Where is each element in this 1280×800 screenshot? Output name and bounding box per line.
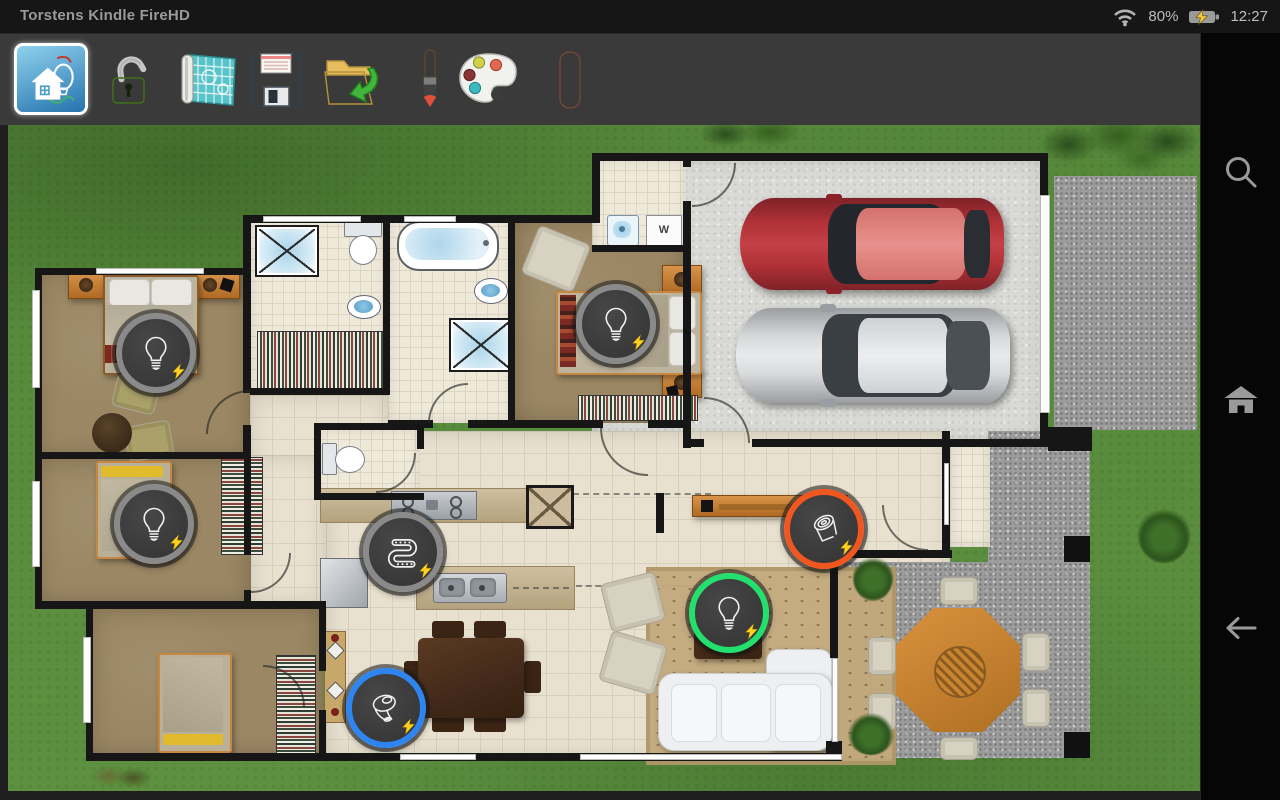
wall <box>35 452 251 459</box>
wall <box>508 215 515 428</box>
patio-chair <box>1022 633 1050 671</box>
master-nightstand-left <box>68 271 104 299</box>
hall-shelf <box>324 631 346 723</box>
nav-search-button[interactable] <box>1221 153 1261 193</box>
living-room-light-marker[interactable] <box>689 573 769 653</box>
nav-home-button[interactable] <box>1221 380 1261 420</box>
driveway <box>1054 176 1197 430</box>
wall <box>468 420 603 428</box>
wifi-icon <box>1112 7 1138 27</box>
wall <box>690 439 704 447</box>
device-name: Torstens Kindle FireHD <box>20 7 190 24</box>
kitchen-pantry <box>526 485 574 529</box>
color-palette-icon <box>456 47 520 113</box>
garage-door <box>1040 195 1050 413</box>
paint-brush-icon <box>398 47 462 113</box>
wall <box>592 245 691 252</box>
master-nightstand-right <box>196 271 240 299</box>
floorplan-button[interactable] <box>176 47 240 113</box>
erase-button[interactable] <box>538 47 602 113</box>
puck-light-icon <box>366 688 406 728</box>
guest-bedroom-light-marker[interactable] <box>576 284 656 364</box>
dining-chair <box>524 661 541 693</box>
window <box>404 216 456 222</box>
nav-back-button[interactable] <box>1221 608 1261 648</box>
wall <box>250 388 390 395</box>
wall <box>1040 413 1048 447</box>
window <box>96 268 204 274</box>
wall <box>1048 427 1092 451</box>
magnifier-icon <box>1221 153 1261 193</box>
plan-bottom-edge <box>8 791 1200 800</box>
fridge <box>320 558 368 608</box>
wall <box>683 201 691 448</box>
master-walkin-robe <box>257 331 387 391</box>
window <box>580 754 842 760</box>
load-button[interactable] <box>318 47 382 113</box>
dining-chair <box>474 621 506 638</box>
red-car <box>740 198 1004 290</box>
grass-tuft <box>853 555 893 601</box>
master-bedroom-light-marker[interactable] <box>116 313 196 393</box>
eraser-icon <box>538 47 602 113</box>
wall <box>319 601 326 671</box>
status-bar: Torstens Kindle FireHD 80% 12:27 <box>0 0 1280 33</box>
wall <box>592 153 1048 161</box>
washing-machine: W <box>646 215 682 246</box>
lightning-bolt-icon <box>402 718 415 735</box>
window <box>832 658 838 742</box>
wall <box>592 153 600 219</box>
wall <box>314 423 424 430</box>
wall <box>656 493 664 533</box>
bulb-light-icon <box>134 504 174 544</box>
wall <box>830 558 838 658</box>
console-spot-light-marker[interactable] <box>784 489 864 569</box>
app-home-button[interactable] <box>14 43 88 115</box>
wall <box>314 493 424 500</box>
tree-canopy <box>1036 125 1200 175</box>
arrow-left-icon <box>1221 608 1261 648</box>
app-toolbar <box>0 33 1200 126</box>
alfresco-paving <box>950 443 990 547</box>
bathroom-sink <box>474 278 508 304</box>
palette-button[interactable] <box>456 47 520 113</box>
spot-light-icon <box>804 509 844 549</box>
battery-charging-icon <box>1188 9 1220 25</box>
unlock-button[interactable] <box>100 47 164 113</box>
bathroom-shower <box>449 318 513 372</box>
window <box>400 754 476 760</box>
patio-chair <box>868 637 896 675</box>
master-round-table <box>92 413 132 453</box>
bedroom2-light-marker[interactable] <box>114 484 194 564</box>
guest-nightstand-top <box>662 265 702 294</box>
wall <box>314 423 321 500</box>
bedroom2-wardrobe <box>221 457 263 555</box>
patio-pillar <box>1064 732 1090 758</box>
patio-pillar <box>1064 536 1090 562</box>
ensuite-shower <box>255 225 319 277</box>
strip-light-icon <box>383 532 423 572</box>
bulb-light-icon <box>596 304 636 344</box>
clock: 12:27 <box>1230 8 1268 25</box>
kitchen-boundary-dash <box>573 493 711 495</box>
window <box>32 481 40 567</box>
wall <box>243 215 251 393</box>
sofa <box>658 673 832 751</box>
bush <box>83 759 155 793</box>
grass-tuft <box>1138 507 1190 563</box>
wall <box>752 439 1048 447</box>
grass-tuft <box>848 713 894 755</box>
lightning-bolt-icon <box>632 334 645 351</box>
window <box>83 637 91 723</box>
wall <box>417 423 424 449</box>
paint-button[interactable] <box>398 47 462 113</box>
system-nav-bar <box>1200 33 1280 800</box>
wc-toilet-bowl <box>335 446 365 473</box>
ensuite-sink <box>347 295 381 319</box>
window <box>263 216 361 222</box>
hue-house-app-icon <box>17 46 85 112</box>
dining-chair <box>432 621 464 638</box>
save-button[interactable] <box>244 47 308 113</box>
floppy-disk-icon <box>244 47 308 113</box>
kitchen-lightstrip-marker[interactable] <box>363 512 443 592</box>
patio-chair <box>940 577 978 605</box>
tree-canopy-small <box>692 125 804 151</box>
main-content: W <box>0 125 1200 800</box>
wall <box>683 153 691 167</box>
status-indicators: 80% 12:27 <box>1112 0 1268 33</box>
laundry-sink <box>607 215 639 246</box>
lightning-bolt-icon <box>172 363 185 380</box>
guest-wardrobe <box>578 395 698 421</box>
wall <box>244 452 251 555</box>
floor-plan-canvas[interactable]: W <box>8 125 1200 800</box>
patio-chair <box>1022 689 1050 727</box>
window <box>944 463 949 525</box>
bedroom3-bed <box>158 653 232 753</box>
home-icon <box>1221 380 1261 420</box>
bulb-light-icon <box>709 593 749 633</box>
kitchen-island <box>416 566 575 610</box>
lightning-bolt-icon <box>745 623 758 640</box>
lightning-bolt-icon <box>840 539 853 556</box>
lightning-bolt-icon <box>419 562 432 579</box>
wall <box>383 215 390 395</box>
padlock-open-icon <box>100 47 164 113</box>
patio-chair <box>940 737 978 760</box>
ensuite-toilet-bowl <box>349 235 377 265</box>
wall <box>35 601 319 609</box>
bulb-light-icon <box>136 333 176 373</box>
lightning-bolt-icon <box>170 534 183 551</box>
dining-table <box>418 638 524 718</box>
dining-go-light-marker[interactable] <box>346 668 426 748</box>
bathtub <box>397 221 499 271</box>
blueprint-icon <box>176 47 240 113</box>
silver-car <box>736 308 1010 403</box>
folder-import-icon <box>318 47 382 113</box>
window <box>32 290 40 388</box>
battery-percent: 80% <box>1148 8 1178 25</box>
